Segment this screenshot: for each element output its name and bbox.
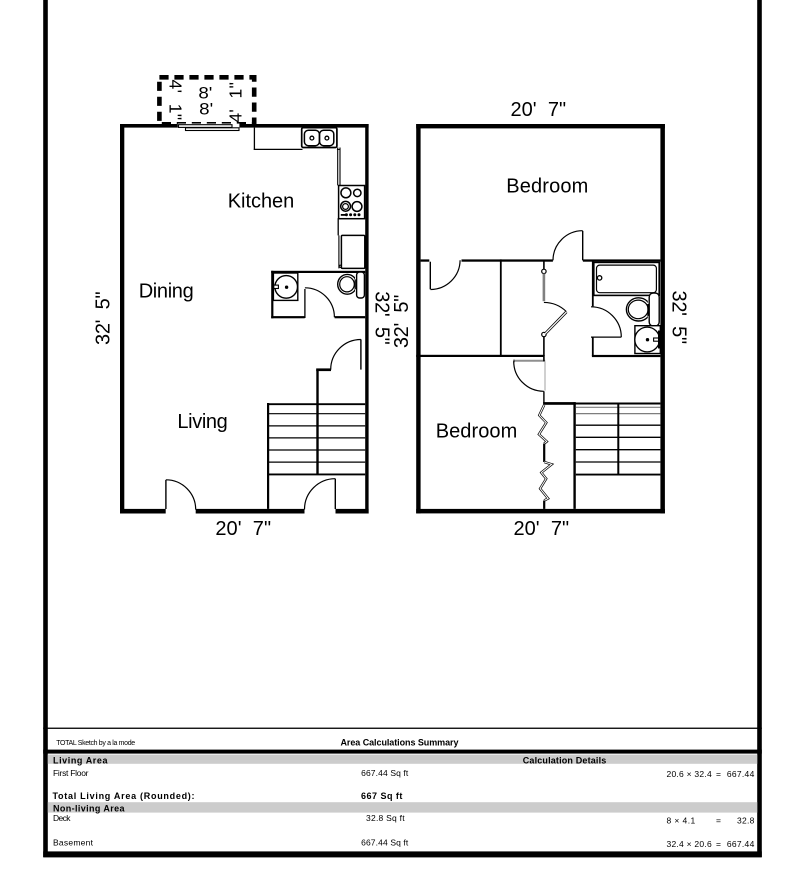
svg-text:32.8 Sq ft: 32.8 Sq ft: [366, 813, 405, 823]
svg-text:20' 7": 20' 7": [513, 518, 569, 540]
svg-text:Living Area: Living Area: [53, 755, 108, 765]
svg-text:8 × 4.1: 8 × 4.1: [667, 816, 696, 826]
svg-text:Living: Living: [177, 411, 227, 433]
svg-text:=: =: [716, 839, 721, 849]
svg-text:667.44 Sq ft: 667.44 Sq ft: [361, 837, 409, 847]
svg-text:TOTAL Sketch by a la mode: TOTAL Sketch by a la mode: [56, 740, 135, 747]
svg-text:Basement: Basement: [53, 837, 94, 847]
svg-text:667.44 Sq ft: 667.44 Sq ft: [361, 768, 409, 778]
svg-text:Dining: Dining: [139, 281, 194, 303]
svg-text:667.44: 667.44: [727, 839, 755, 849]
svg-text:4' 1": 4' 1": [165, 80, 185, 121]
svg-text:Area Calculations Summary: Area Calculations Summary: [341, 738, 459, 748]
svg-text:32' 5": 32' 5": [93, 291, 115, 345]
svg-text:20.6 × 32.4: 20.6 × 32.4: [667, 769, 712, 779]
svg-text:20' 7": 20' 7": [215, 518, 271, 540]
svg-text:32' 5": 32' 5": [370, 291, 392, 345]
svg-text:Calculation Details: Calculation Details: [523, 755, 607, 765]
svg-text:=: =: [716, 816, 721, 826]
svg-text:32.4 × 20.6: 32.4 × 20.6: [667, 839, 712, 849]
svg-text:Bedroom: Bedroom: [506, 176, 588, 198]
svg-text:Bedroom: Bedroom: [436, 420, 518, 442]
svg-text:667.44: 667.44: [727, 769, 755, 779]
svg-text:Total Living Area (Rounded):: Total Living Area (Rounded):: [53, 791, 195, 801]
svg-text:667 Sq ft: 667 Sq ft: [361, 791, 402, 801]
svg-text:=: =: [716, 769, 721, 779]
svg-text:8': 8': [199, 100, 213, 119]
svg-text:32.8: 32.8: [737, 816, 755, 826]
svg-text:20' 7": 20' 7": [510, 99, 566, 121]
svg-text:Kitchen: Kitchen: [228, 191, 295, 213]
svg-text:First Floor: First Floor: [53, 768, 89, 778]
svg-text:Non-living Area: Non-living Area: [53, 803, 125, 813]
svg-text:32' 5": 32' 5": [391, 295, 413, 349]
svg-text:4' 1": 4' 1": [226, 82, 246, 123]
svg-text:32' 5": 32' 5": [667, 291, 689, 345]
svg-text:Deck: Deck: [53, 813, 71, 823]
